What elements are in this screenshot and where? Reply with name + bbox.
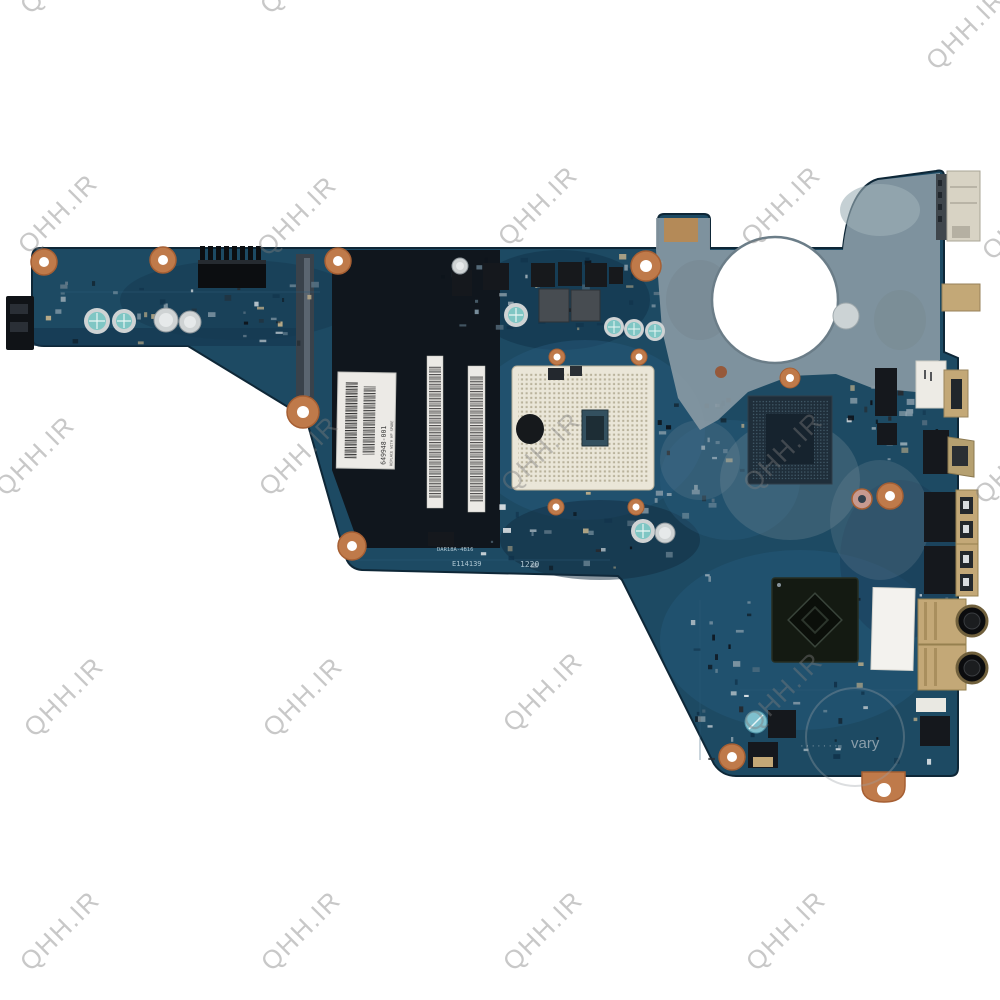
product-photo: 649948-001 REPLACE WITH HP SPARE (0, 0, 1000, 1000)
silkscreen-model: DAR18A-4B16 (437, 547, 473, 553)
edge-tab-pad (942, 284, 980, 311)
usb-port-2 (924, 544, 978, 596)
usb-port-1 (924, 490, 978, 544)
fan-cutout-hole (712, 237, 838, 363)
label-part-number: 649948-001 (379, 426, 388, 465)
white-chip-label (916, 698, 946, 712)
power-connector (6, 296, 34, 350)
audio-jack-2 (918, 645, 987, 690)
connector-pins (753, 757, 773, 767)
silkscreen-date-code: 1220 (520, 560, 539, 569)
cpu-socket (512, 366, 654, 490)
hdmi-port (948, 437, 974, 477)
socket-cam-lock (516, 414, 544, 444)
stamp-text: vary (851, 735, 879, 752)
vga-port (936, 171, 980, 241)
motherboard-photo: 649948-001 REPLACE WITH HP SPARE (0, 0, 1000, 1000)
white-sticker (871, 587, 915, 670)
stamp-dots: ······· (800, 740, 840, 752)
round-component (745, 711, 767, 733)
silkscreen-serial: E114139 (452, 560, 482, 568)
hp-spare-label: 649948-001 REPLACE WITH HP SPARE (336, 372, 396, 469)
label-note: REPLACE WITH HP SPARE (389, 420, 394, 466)
amd-gpu-chip (772, 578, 858, 662)
ram-slot-contacts (304, 258, 310, 396)
audio-jack-1 (918, 599, 987, 644)
ground-pad (664, 218, 698, 242)
chipset-bga (748, 396, 832, 484)
